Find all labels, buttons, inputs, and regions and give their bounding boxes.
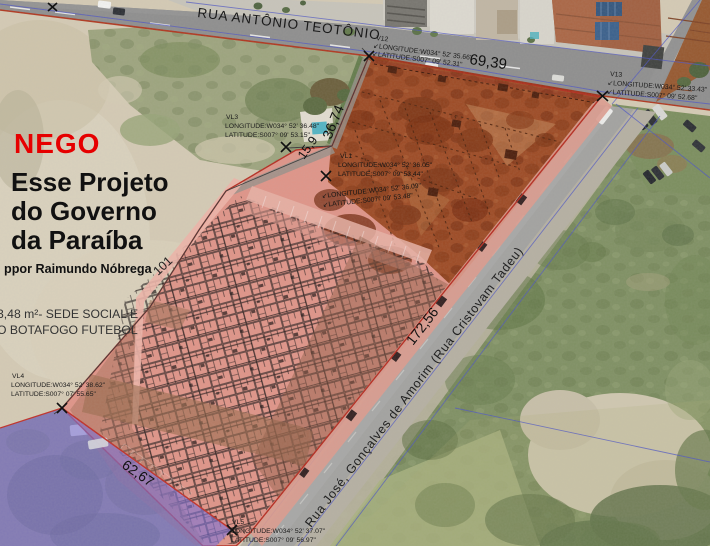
svg-text:LATITUDE:S007° 09' 56.97": LATITUDE:S007° 09' 56.97" <box>231 536 316 544</box>
svg-text:LONGITUDE:W034° 52' 36.48": LONGITUDE:W034° 52' 36.48" <box>225 122 320 130</box>
svg-text:da Paraíba: da Paraíba <box>11 225 143 255</box>
svg-text:VL3: VL3 <box>226 114 238 121</box>
svg-text:NEGO: NEGO <box>14 128 100 159</box>
svg-text:do Governo: do Governo <box>11 196 157 226</box>
svg-text:O BOTAFOGO FUTEBOL: O BOTAFOGO FUTEBOL <box>0 323 138 337</box>
svg-text:VL4: VL4 <box>12 373 24 380</box>
svg-text:LATITUDE:S007° 09' 53.15": LATITUDE:S007° 09' 53.15" <box>225 131 310 139</box>
svg-text:ppor Raimundo Nóbrega: ppor Raimundo Nóbrega <box>4 262 153 276</box>
svg-text:LONGITUDE:W034° 52' 36.05": LONGITUDE:W034° 52' 36.05" <box>338 161 433 169</box>
svg-text:V13: V13 <box>610 71 623 79</box>
svg-text:Esse Projeto: Esse Projeto <box>11 167 169 197</box>
svg-text:LONGITUDE:W034° 52' 37.07": LONGITUDE:W034° 52' 37.07" <box>231 527 326 535</box>
svg-text:VL1: VL1 <box>340 153 352 160</box>
svg-text:LATITUDE:S007° 07' 55.65": LATITUDE:S007° 07' 55.65" <box>11 390 96 398</box>
svg-text:V12: V12 <box>376 35 389 43</box>
svg-text:VL5: VL5 <box>232 519 244 526</box>
svg-text:LONGITUDE:W034° 52' 38.62": LONGITUDE:W034° 52' 38.62" <box>11 381 106 389</box>
svg-text:3,48 m²- SEDE SOCIAL E: 3,48 m²- SEDE SOCIAL E <box>0 307 138 321</box>
svg-text:LATITUDE:S007° 09' 53.44": LATITUDE:S007° 09' 53.44" <box>338 170 423 178</box>
